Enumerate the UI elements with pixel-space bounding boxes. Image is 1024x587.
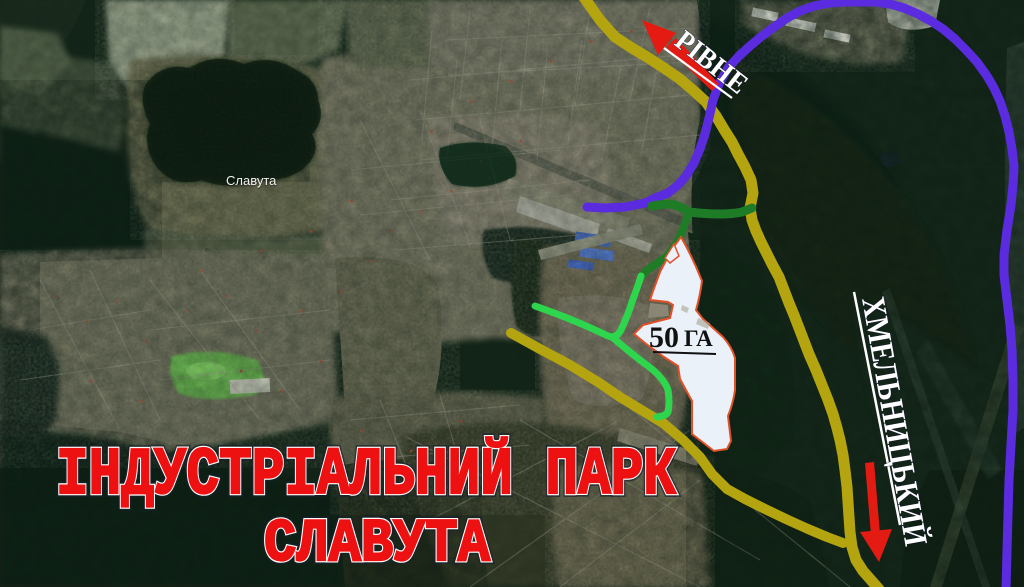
- svg-text:СЛАВУТА: СЛАВУТА: [264, 511, 490, 579]
- svg-text:Славута: Славута: [226, 173, 277, 188]
- svg-text:ІНДУСТРІАЛЬНИЙ ПАРК: ІНДУСТРІАЛЬНИЙ ПАРК: [56, 437, 677, 514]
